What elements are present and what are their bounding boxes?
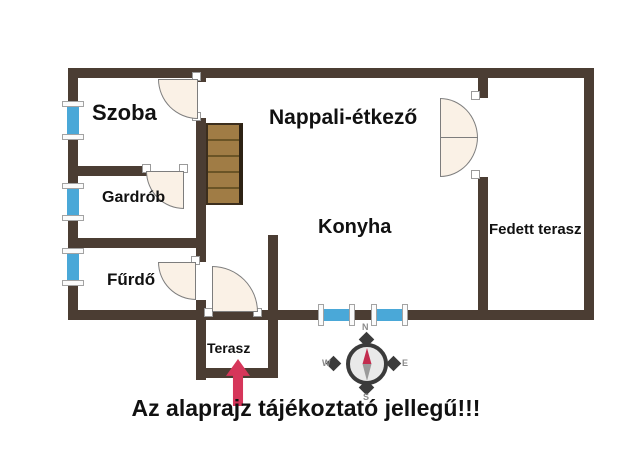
room-label-furdo: Fűrdő bbox=[107, 270, 155, 290]
window-cap bbox=[62, 215, 84, 221]
window-kitchen-1 bbox=[324, 309, 349, 321]
window-cap bbox=[349, 304, 355, 326]
window-cap bbox=[62, 280, 84, 286]
compass-point-east-icon bbox=[386, 356, 402, 372]
window-kitchen-2 bbox=[377, 309, 402, 321]
door-furdo bbox=[158, 262, 196, 300]
room-label-konyha: Konyha bbox=[318, 216, 391, 239]
wall-outer-right bbox=[584, 68, 594, 320]
door-szoba bbox=[158, 79, 198, 119]
window-furdo bbox=[67, 254, 79, 280]
compass-label-w: W bbox=[322, 358, 331, 368]
window-szoba bbox=[67, 107, 79, 134]
door-french-top-leaf bbox=[440, 98, 478, 138]
stair-tread bbox=[208, 189, 239, 203]
stair-tread bbox=[208, 157, 239, 173]
window-cap bbox=[402, 304, 408, 326]
compass-label-e: E bbox=[402, 358, 408, 368]
window-cap bbox=[62, 134, 84, 140]
stair-tread bbox=[208, 141, 239, 157]
floor-plan: Szoba Gardrób Fűrdő Nappali-étkező Konyh… bbox=[0, 0, 640, 467]
room-label-terasz: Terasz bbox=[207, 340, 250, 356]
wall-szoba-gardrob bbox=[78, 166, 148, 176]
stairs bbox=[206, 123, 243, 205]
room-label-fedett-terasz: Fedett terasz bbox=[489, 221, 582, 238]
window-gardrob bbox=[67, 189, 79, 215]
door-entrance bbox=[212, 266, 258, 312]
room-label-gardrob: Gardrób bbox=[102, 189, 165, 207]
door-jamb bbox=[471, 91, 480, 100]
room-label-szoba: Szoba bbox=[92, 100, 157, 126]
disclaimer-text: Az alaprajz tájékoztató jellegű!!! bbox=[0, 395, 612, 422]
wall-terrace-divider-lower bbox=[478, 177, 488, 320]
wall-kitchen-stub-and-terasz-right bbox=[268, 235, 278, 378]
wall-outer-top bbox=[68, 68, 592, 78]
door-jamb bbox=[471, 170, 480, 179]
wall-gardrob-furdo bbox=[78, 238, 196, 248]
stair-tread bbox=[208, 173, 239, 189]
wall-central-middle bbox=[196, 118, 206, 262]
stair-tread bbox=[208, 125, 239, 141]
compass-label-n: N bbox=[362, 322, 369, 332]
room-label-nappali: Nappali-étkező bbox=[269, 106, 417, 130]
